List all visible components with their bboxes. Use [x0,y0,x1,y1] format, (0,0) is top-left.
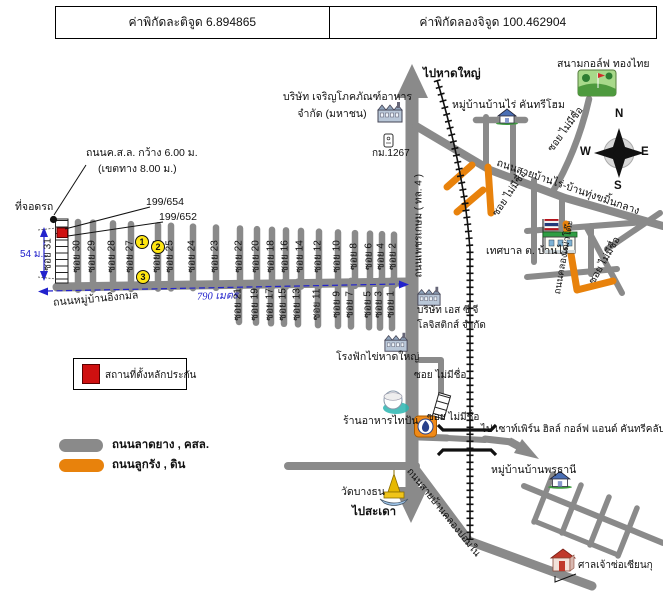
prutani-village-label: หมู่บ้านบ้านพรุธานี [491,464,576,476]
soi-label: ซอย 15 [276,283,291,327]
soi-label: ซอย 16 [278,235,293,279]
soi-label: ซอย 14 [293,235,308,279]
house-no-654-label: 199/654 [146,196,184,208]
legend-collateral-label: สถานที่ตั้งหลักประกัน [105,368,196,383]
soi-label: ซอย 30 [70,235,85,279]
legend-paved-swatch [59,439,103,452]
cp-foods-label-1: บริษัท เจริญโภคภัณฑ์อาหาร [283,91,399,103]
golf-course-label: สนามกอล์ฟ ทองไทย [557,58,650,70]
cp-foods-label-2: จำกัด (มหาชน) [297,108,367,120]
compass-n-label: N [615,108,623,121]
factory-icon-scg [418,287,440,305]
soi-noname-h2-label: ซอย ไม่มีชื่อ [427,412,479,424]
shrine-label: ศาลเจ้าซ่อเซียนกุ [578,560,653,572]
soi-label: ซอย 18 [264,235,279,279]
photo-marker-1: 1 [135,235,149,249]
soi-label: ซอย 25 [163,235,178,279]
soi-label: ซอย 29 [85,235,100,279]
parking-label: ที่จอดรถ [15,201,53,213]
restaurant-pot-icon [383,391,409,414]
house-no-652-label: 199/652 [159,211,197,223]
golf-course-icon [578,70,616,96]
soi-label: ซอย 12 [311,235,326,279]
hatchery-label: โรงฟักไข่หาดใหญ่ [336,351,419,363]
soi-label: ซอย 1 [384,283,399,327]
soi-label: ซอย 22 [232,235,247,279]
southern-hills-label: ไป เซาท์เพิร์น ฮิลล์ กอล์ฟ แอนด์ คันทรีค… [481,424,663,436]
collateral-swatch [82,364,100,384]
soi-label: ซอย 20 [249,235,264,279]
map-page: ค่าพิกัดละติจูด 6.894865 ค่าพิกัดลองจิจู… [0,0,663,607]
road-prutani-lower [534,521,618,555]
km-post-label: กม.1267 [372,148,410,160]
shrine-icon [551,549,575,571]
parking-dot [50,216,57,223]
phetkasem-road-label: ถนนเพชรเกษม ( ทล. 4 ) [413,166,425,286]
legend-dirt-label: ถนนลูกรัง , ดิน [112,459,185,472]
banrai-village-label: หมู่บ้านบ้านไร่ คันทรีโฮม [452,99,565,111]
dirt-road-b [457,190,483,212]
to-hatyai-label: ไปหาดใหญ่ [423,68,481,81]
to-sadao-label: ไปสะเดา [352,506,396,519]
collateral-site-rect [57,228,68,238]
factory-icon-hatchery [385,333,407,351]
soi-label: ซอย 23 [208,235,223,279]
soi-label: ซอย 11 [310,283,325,327]
photo-marker-3: 3 [136,270,150,284]
road-spec-label-1: ถนนค.ส.ล. กว้าง 6.00 ม. [86,147,198,159]
scg-label-1: บริษัท เอส ซี จี [417,305,478,317]
soi-label: ซอย 13 [290,283,305,327]
wat-label: วัดบางธน [341,486,385,498]
road-bridge-east [485,439,512,442]
legend-dirt-swatch [59,459,104,472]
soi-label: ซอย 19 [248,283,263,327]
soi-label: ซอย 28 [105,235,120,279]
soi-label: ซอย 21 [231,283,246,327]
factory-icon-cp [378,102,402,122]
scg-label-2: โลจิสติกส์ จำกัด [417,320,486,332]
soi-label: ซอย 31 [41,233,56,277]
km-post-icon [384,134,393,147]
compass-e-label: E [641,146,649,159]
soi-label: ซอย 7 [343,283,358,327]
soi-label: ซอย 24 [185,235,200,279]
dirt-road-c [488,167,491,213]
road-under-bridge [447,438,485,440]
municipality-label: เทศบาล ต. บ้านไร่ [486,245,568,257]
compass-s-label: S [614,180,622,193]
soi-label: ซอย 2 [386,235,401,279]
compass-icon [594,128,644,178]
soi-label: ซอย 8 [347,235,362,279]
legend-paved-label: ถนนลาดยาง , คสล. [112,439,209,452]
legend-collateral-box: สถานที่ตั้งหลักประกัน [73,358,187,390]
taipan-label: ร้านอาหารไทปัน [343,415,418,427]
soi-noname-h1-label: ซอย ไม่มีชื่อ [414,370,466,382]
photo-marker-2: 2 [151,240,165,254]
soi-label: ซอย 10 [330,235,345,279]
road-spec-label-2: (เขตทาง 8.00 ม.) [98,163,177,175]
thai-flag-icon [545,219,559,230]
compass-w-label: W [580,146,591,159]
